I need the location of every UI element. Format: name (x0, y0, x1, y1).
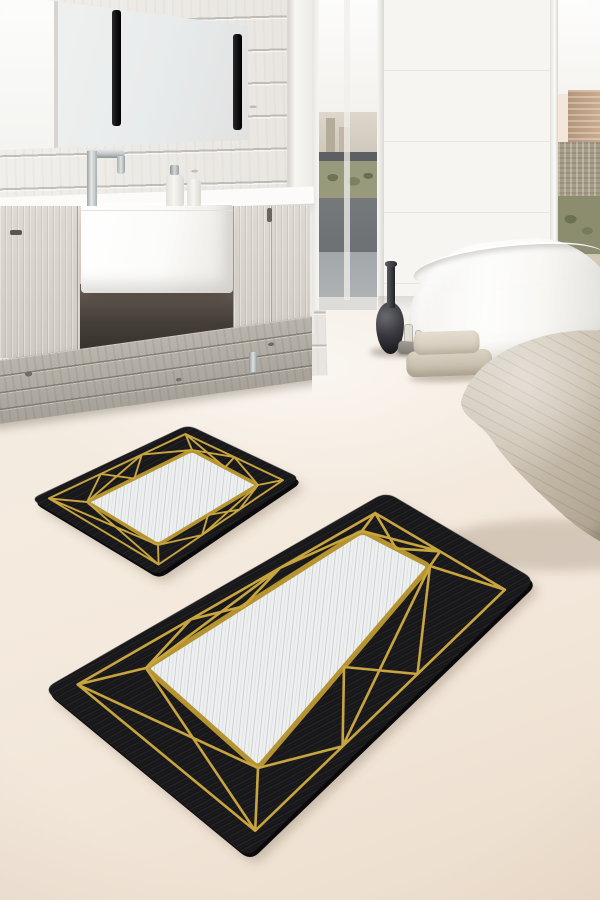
sink-lip (81, 210, 233, 211)
dispenser-pump (170, 165, 179, 175)
door-frame-left (312, 0, 319, 310)
cabinet-leg (249, 352, 257, 372)
folded-towel (413, 330, 480, 355)
faucet-nozzle (117, 156, 125, 174)
soap-dispenser (166, 174, 184, 206)
window-highrise-view (568, 90, 600, 146)
vase-neck (387, 264, 395, 308)
soap-dispenser (187, 179, 201, 206)
cabinet-handle (267, 208, 272, 222)
plinth-area (0, 300, 312, 440)
vase-mouth (385, 261, 397, 267)
window-sky-view (558, 0, 600, 94)
cabinet-handle (10, 230, 22, 235)
window-city-view (558, 142, 600, 196)
towel-stack (405, 328, 499, 383)
rustic-wood-plinth (0, 314, 312, 424)
balcony-door (312, 0, 384, 310)
mirror-lamp-right (233, 34, 242, 130)
door-frame-right (377, 0, 384, 310)
vanity-mirror (0, 0, 248, 152)
door-building (326, 118, 335, 154)
faucet-body (87, 151, 97, 206)
mirror-lamp-left (112, 10, 121, 126)
door-glass-divider (344, 0, 350, 300)
mirror-window-reflection (0, 0, 58, 150)
bathroom-product-photo (0, 0, 600, 900)
farmhouse-sink (81, 203, 233, 293)
